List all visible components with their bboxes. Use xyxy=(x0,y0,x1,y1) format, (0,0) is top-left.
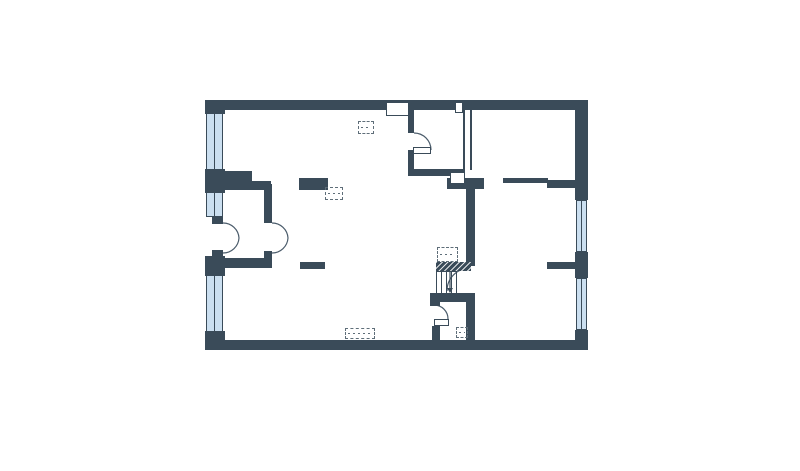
entry-corner-wall xyxy=(430,293,440,306)
right-wall-mid xyxy=(575,252,588,278)
floor-plan-canvas xyxy=(0,0,800,471)
vestibule-wall-right-upper xyxy=(264,184,272,223)
left-wall-mid-lower xyxy=(205,256,225,276)
french-door-hinge-top xyxy=(212,216,223,224)
right-wall-bottom xyxy=(575,330,588,350)
partition-mid xyxy=(466,189,475,266)
shaft-symbol-3 xyxy=(456,327,468,338)
radiator-symbol xyxy=(345,328,375,339)
stair-break-band xyxy=(436,262,471,271)
door-arc-entry xyxy=(434,305,448,319)
window-left-2 xyxy=(206,192,223,217)
door-arc-layer xyxy=(0,0,800,471)
shaft-symbol-1 xyxy=(358,121,374,134)
wall-notch xyxy=(455,102,463,113)
window-right-2 xyxy=(576,278,587,330)
left-wall-top xyxy=(205,100,225,114)
door-arc-french-right-top xyxy=(272,223,288,238)
door-arc-french-left-top xyxy=(223,223,239,238)
window-left-1 xyxy=(206,113,223,170)
stair-treads xyxy=(436,271,457,294)
hall-wall-thick xyxy=(547,180,575,188)
bedroom-stub-wall xyxy=(547,262,575,269)
door-arc-french-right-bottom xyxy=(272,238,288,253)
entry-door-leaf xyxy=(434,319,449,326)
stub-wall-lower xyxy=(300,262,325,269)
vestibule-wall-upper-a xyxy=(225,171,252,190)
right-wall-top xyxy=(575,100,588,200)
stair-upper-flight xyxy=(437,247,458,262)
door-arc-french-left-bottom xyxy=(223,238,239,253)
left-wall-mid-upper xyxy=(205,169,225,193)
duct-step xyxy=(450,172,465,184)
bottom-wall xyxy=(205,340,588,350)
partition-thin-line-left xyxy=(463,110,465,170)
hall-wall-thin xyxy=(503,178,548,183)
shaft-symbol-2 xyxy=(325,187,343,200)
french-door-hinge-bottom xyxy=(212,250,223,258)
partition-thin-line-right xyxy=(470,110,472,170)
left-wall-bottom xyxy=(205,331,225,350)
window-left-3 xyxy=(206,275,223,332)
window-right-1 xyxy=(576,200,587,252)
stub-wall-upper xyxy=(299,178,328,190)
vestibule-wall-right-lower xyxy=(264,251,272,268)
closet-door-leaf xyxy=(413,147,431,154)
wall-niche xyxy=(386,102,409,116)
entry-wall-lower xyxy=(432,326,440,340)
